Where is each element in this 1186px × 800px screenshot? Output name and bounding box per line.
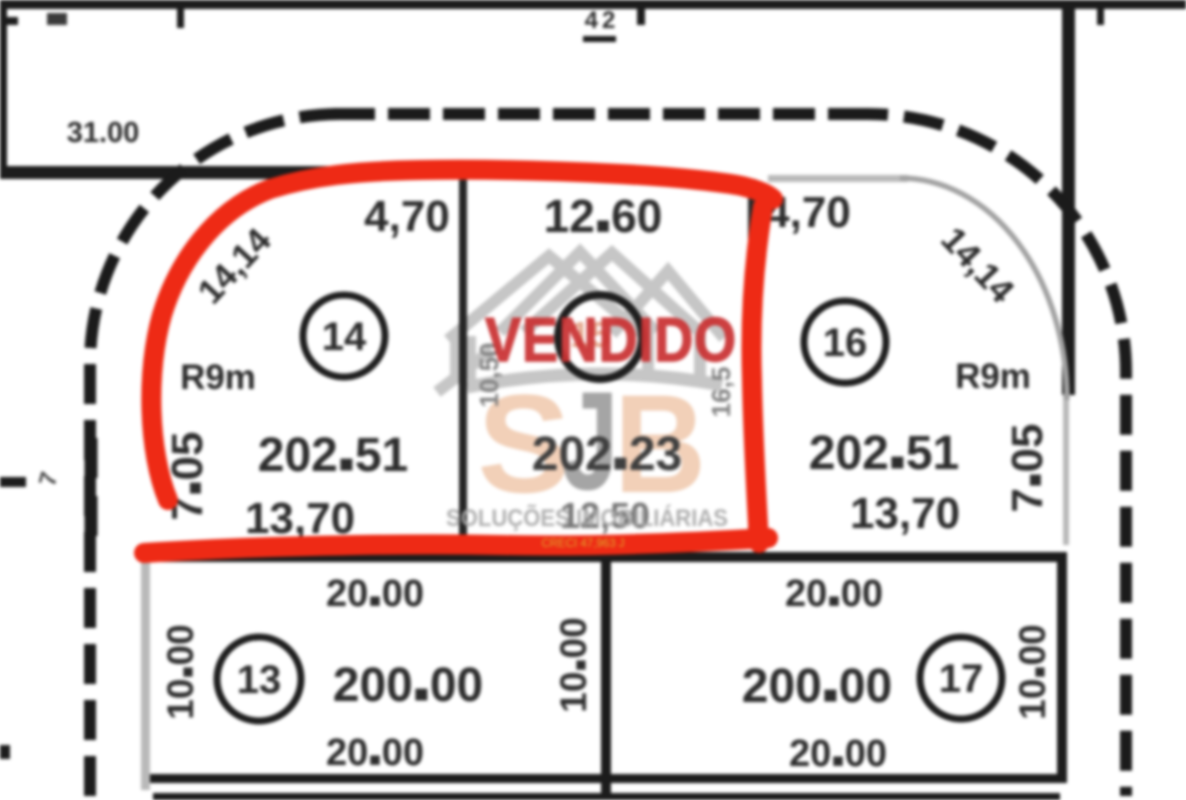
svg-text:200▪00: 200▪00 bbox=[333, 659, 484, 721]
svg-text:202▪51: 202▪51 bbox=[809, 427, 960, 489]
svg-text:7▪05: 7▪05 bbox=[1003, 423, 1059, 512]
svg-text:R9m: R9m bbox=[955, 357, 1031, 396]
svg-text:12▪60: 12▪60 bbox=[544, 190, 663, 250]
svg-text:20▪00: 20▪00 bbox=[785, 573, 883, 622]
svg-text:13,70: 13,70 bbox=[850, 489, 960, 538]
svg-text:R9m: R9m bbox=[180, 358, 256, 397]
svg-text:13: 13 bbox=[237, 658, 282, 702]
svg-text:10▪00: 10▪00 bbox=[553, 617, 601, 712]
svg-text:202▪51: 202▪51 bbox=[258, 429, 409, 491]
svg-text:10▪00: 10▪00 bbox=[1012, 624, 1060, 719]
svg-text:SOLUÇÕES IMOBILIÁRIAS: SOLUÇÕES IMOBILIÁRIAS bbox=[446, 503, 728, 531]
svg-text:20▪00: 20▪00 bbox=[789, 733, 887, 782]
svg-text:VENDIDO: VENDIDO bbox=[485, 306, 737, 375]
svg-text:20▪00: 20▪00 bbox=[326, 732, 424, 781]
svg-text:14: 14 bbox=[322, 315, 367, 359]
svg-text:42: 42 bbox=[585, 7, 620, 34]
svg-text:4,70: 4,70 bbox=[364, 192, 450, 241]
svg-text:CRECI 47,963 J: CRECI 47,963 J bbox=[541, 538, 624, 550]
svg-text:16: 16 bbox=[823, 321, 868, 365]
svg-text:31.00: 31.00 bbox=[67, 117, 140, 149]
svg-text:10▪00: 10▪00 bbox=[160, 624, 208, 719]
svg-text:17: 17 bbox=[939, 657, 984, 701]
svg-text:202▪23: 202▪23 bbox=[532, 428, 683, 490]
svg-text:20▪00: 20▪00 bbox=[326, 573, 424, 622]
svg-text:200▪00: 200▪00 bbox=[742, 660, 893, 722]
